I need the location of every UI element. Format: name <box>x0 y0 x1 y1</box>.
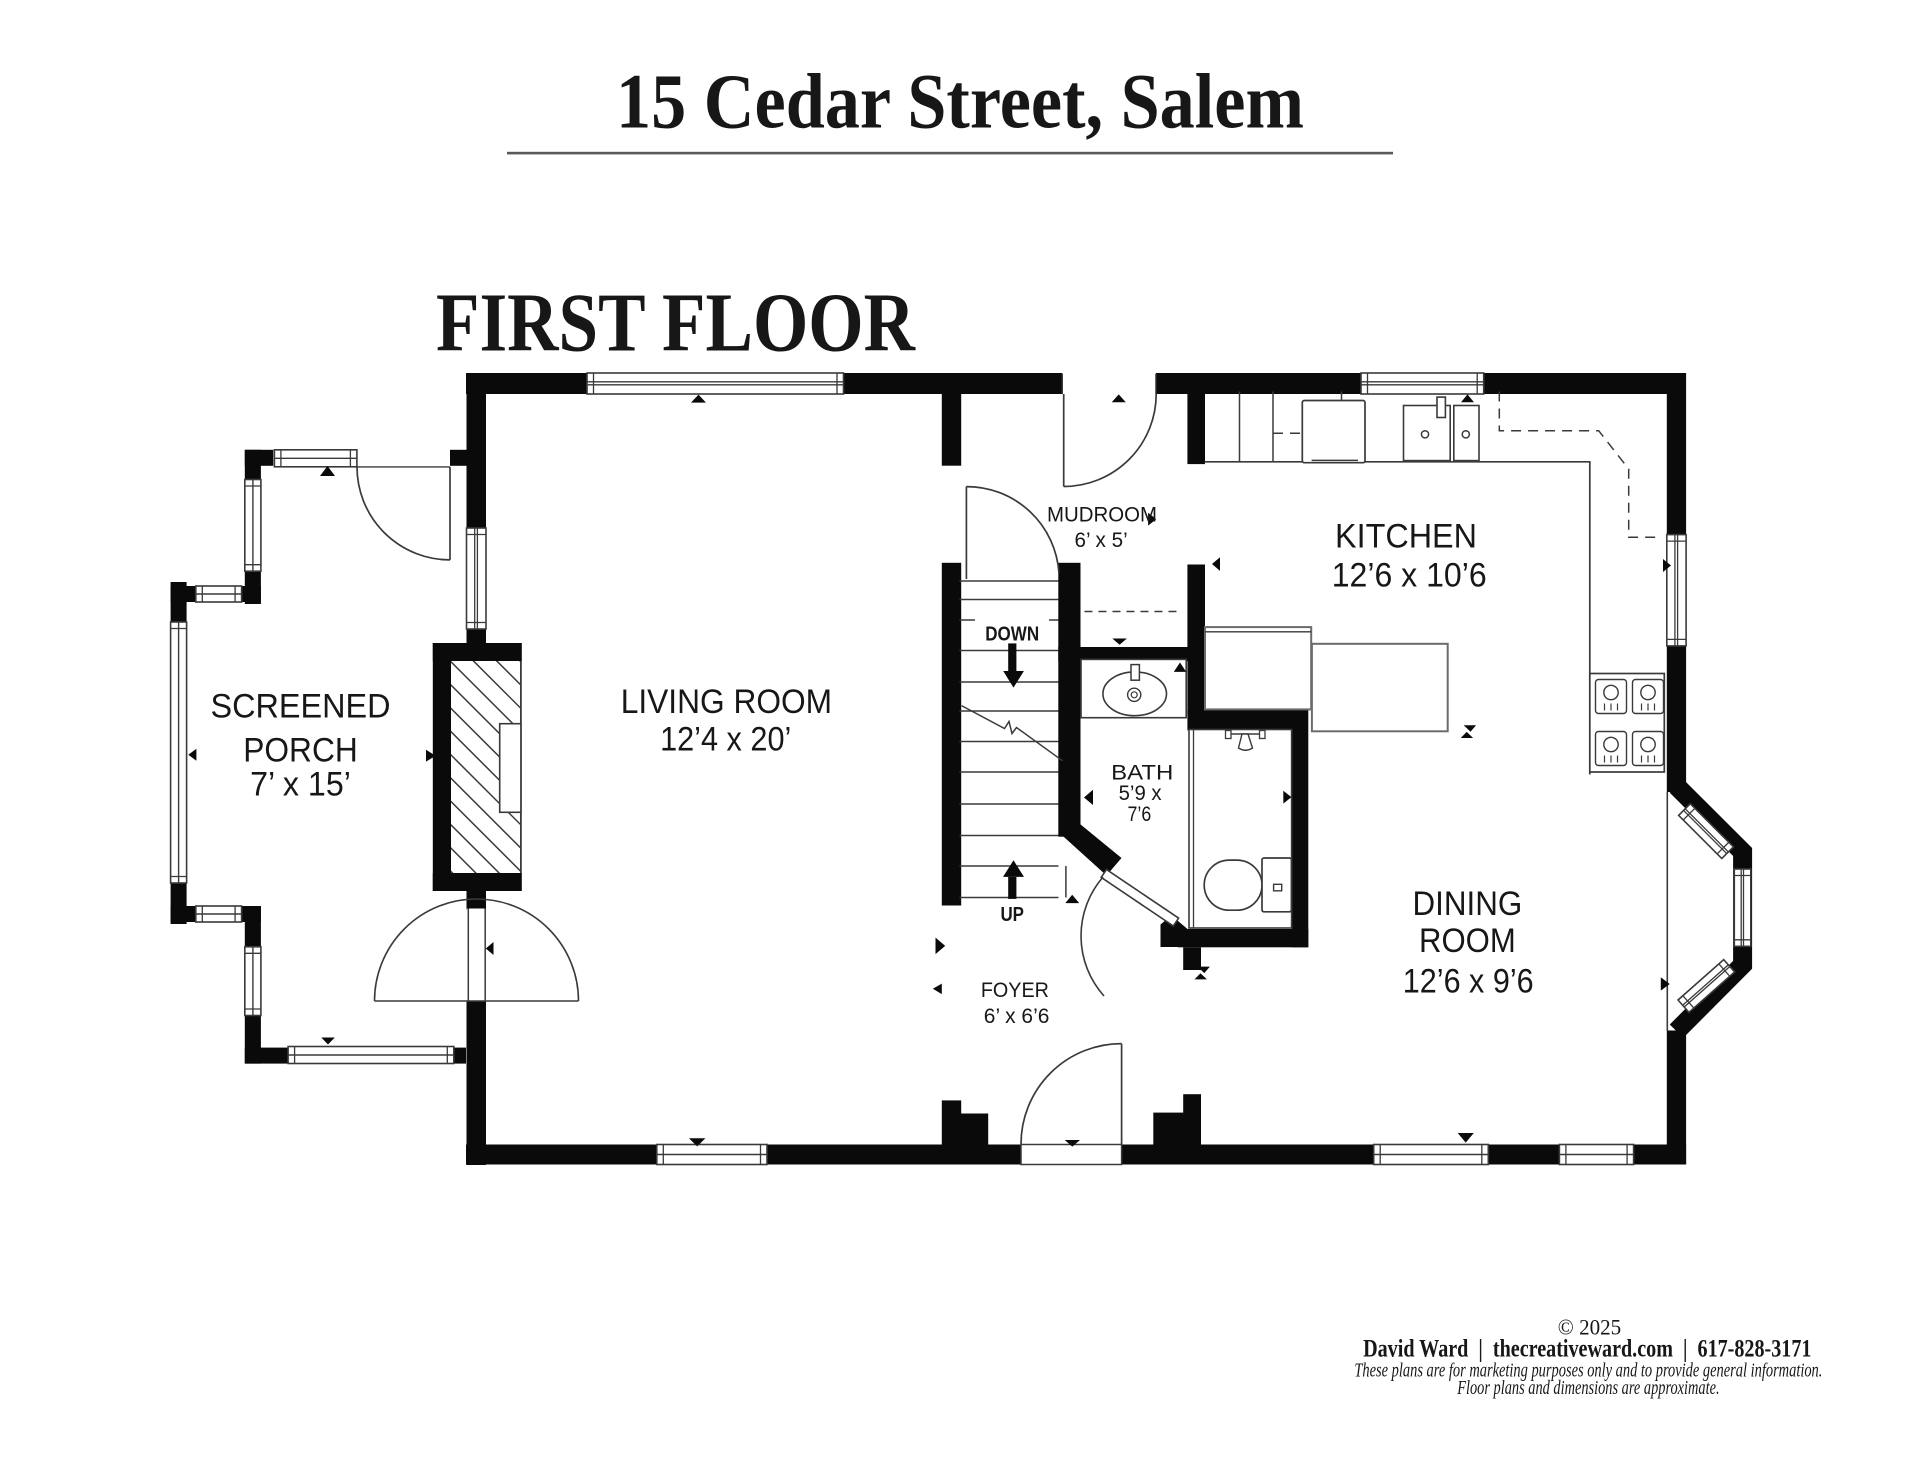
svg-text:BATH: BATH <box>1111 761 1173 784</box>
svg-text:DOWN: DOWN <box>985 623 1039 646</box>
svg-text:KITCHEN: KITCHEN <box>1335 518 1477 556</box>
svg-text:Floor plans and dimensions are: Floor plans and dimensions are approxima… <box>1456 1378 1719 1399</box>
svg-text:12’6 x 9’6: 12’6 x 9’6 <box>1403 963 1534 1001</box>
svg-text:SCREENED: SCREENED <box>211 688 391 726</box>
svg-text:ROOM: ROOM <box>1419 922 1516 960</box>
svg-text:12’6 x 10’6: 12’6 x 10’6 <box>1332 556 1487 594</box>
svg-text:6’ x 5’: 6’ x 5’ <box>1075 529 1128 552</box>
svg-text:7’6: 7’6 <box>1128 803 1152 826</box>
svg-text:MUDROOM: MUDROOM <box>1047 504 1157 527</box>
svg-text:6’ x 6’6: 6’ x 6’6 <box>984 1005 1050 1028</box>
svg-text:UP: UP <box>1000 903 1024 926</box>
svg-text:DINING: DINING <box>1413 885 1523 923</box>
svg-text:FOYER: FOYER <box>981 979 1049 1002</box>
svg-text:12’4 x 20’: 12’4 x 20’ <box>660 721 791 759</box>
svg-text:PORCH: PORCH <box>243 731 358 769</box>
svg-text:5’9 x: 5’9 x <box>1119 782 1162 805</box>
svg-text:LIVING ROOM: LIVING ROOM <box>621 683 832 721</box>
svg-text:David Ward | thecreativeward: David Ward | thecreativeward.com | 617-8… <box>1363 1336 1811 1363</box>
svg-text:7’ x 15’: 7’ x 15’ <box>250 766 351 804</box>
svg-text:FIRST FLOOR: FIRST FLOOR <box>436 277 916 370</box>
svg-text:15 Cedar Street, Salem: 15 Cedar Street, Salem <box>616 58 1304 145</box>
